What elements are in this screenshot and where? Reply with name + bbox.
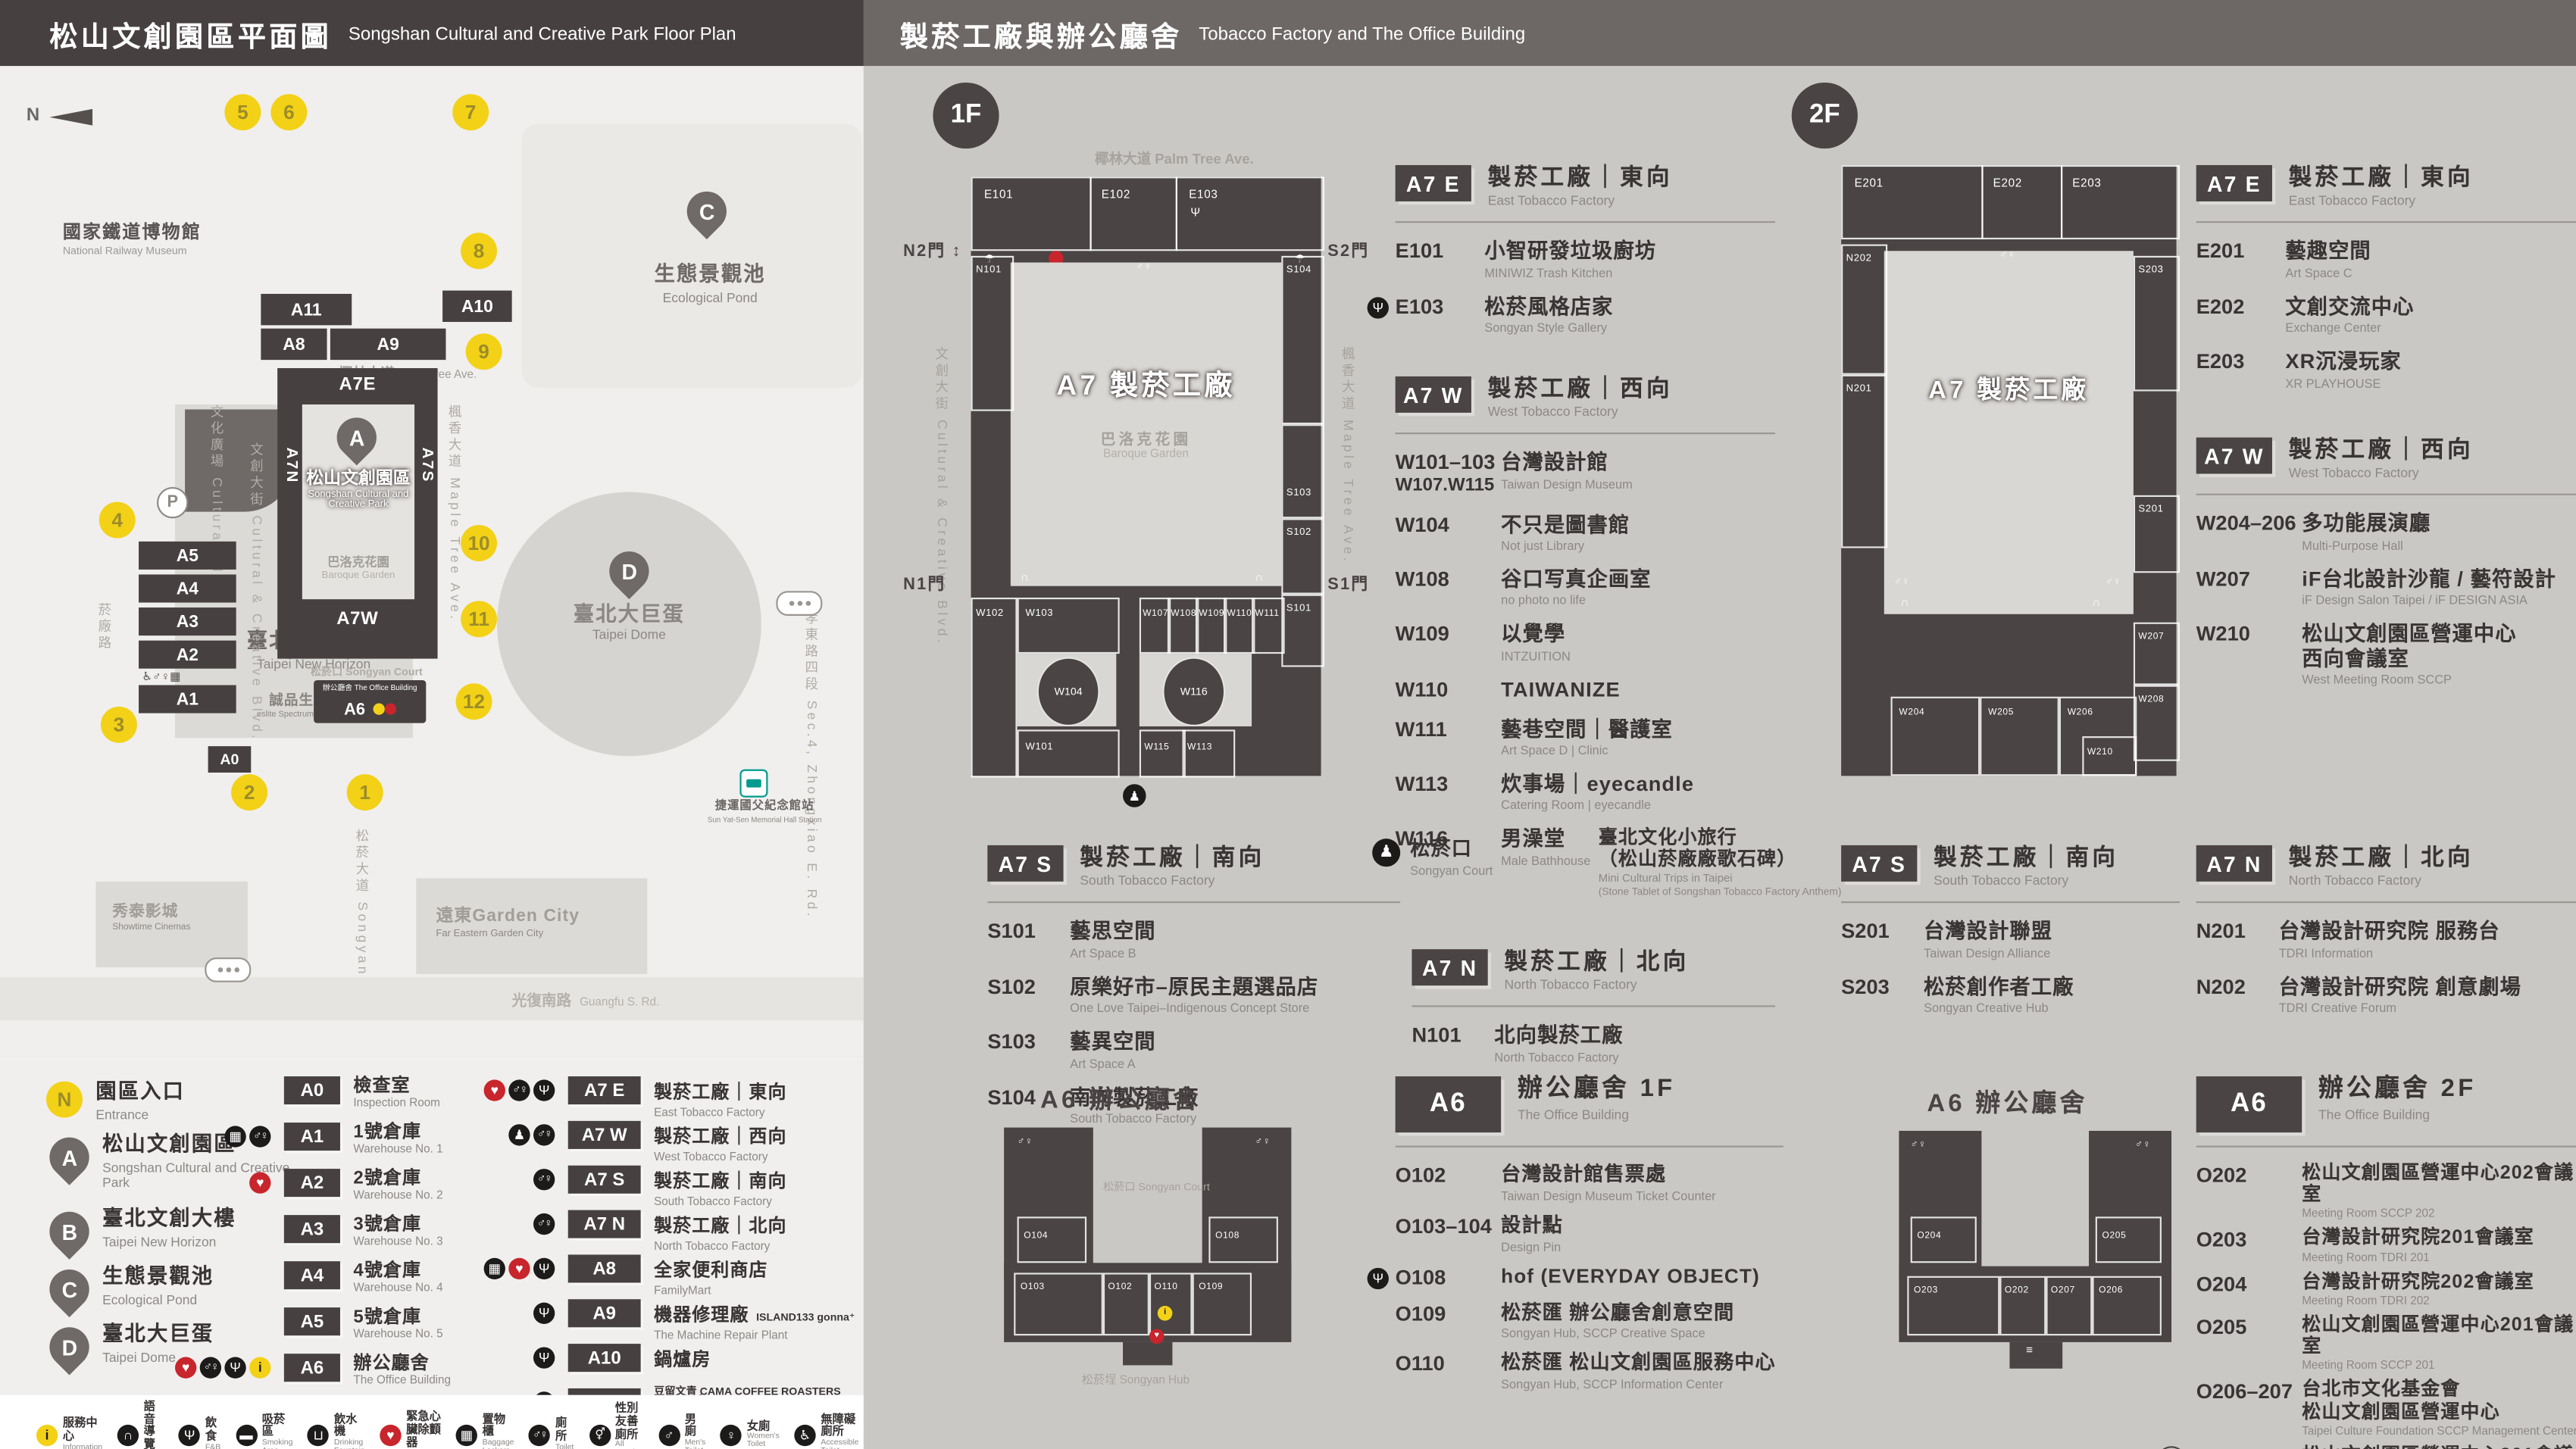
legend-entry[interactable]: Ψ O108 hof (EVERYDAY OBJECT)	[1396, 1266, 1784, 1291]
lockers-icon: ▦	[170, 672, 180, 683]
palm-ave-1f: 椰林大道 Palm Tree Ave.	[1095, 148, 1254, 168]
north-label: N	[27, 105, 39, 125]
ccb-1f: 文創大街 Cultural & Creative Blvd.	[933, 347, 951, 646]
icon-legend-item: ▬ 吸菸區Smoking Area	[236, 1414, 293, 1449]
north-arrow-icon	[49, 109, 92, 126]
guangfu-road	[0, 977, 864, 1020]
legend-entry[interactable]: W113 炊事場｜eyecandleCatering Room | eyecan…	[1396, 773, 1775, 813]
building-a9[interactable]: A9	[330, 329, 446, 360]
legend-entry[interactable]: O205 松山文創園區營運中心201會議室Meeting Room SCCP 2…	[2196, 1316, 2576, 1372]
fnb-icon: Ψ	[533, 1258, 555, 1279]
right-title-zh: 製菸工廠與辦公廳舍	[900, 12, 1183, 53]
toilet-icon: ♂♀	[533, 1124, 555, 1145]
aed-icon: ♥	[249, 1172, 270, 1193]
floor-plan-board: 松山文創園區平面圖 Songshan Cultural and Creative…	[0, 0, 2576, 1449]
ring-a7e-label: A7E	[277, 375, 437, 395]
entrance-number[interactable]: 9	[466, 333, 502, 370]
mrt-station-label: 捷運國父紀念館站 Sun Yat-Sen Memorial Hall Stati…	[674, 801, 855, 823]
entrance-number[interactable]: 7	[452, 94, 489, 130]
section-2f-a7w: A7 W 製菸工廠｜西向West Tobacco Factory W204–20…	[2196, 438, 2576, 701]
audio-icon: ∩	[1255, 573, 1264, 584]
plan-a6-2f[interactable]: A6 辦公廳舍 O204 O205 O203 O202 O207 O206 ♂♀…	[1891, 1082, 2180, 1395]
legend-entry[interactable]: S101 藝思空間Art Space B	[987, 920, 1400, 960]
toilet-icon: ♂♀	[2106, 578, 2121, 588]
entrance-number[interactable]: 10	[461, 525, 497, 561]
left-legend: N 園區入口Entrance A 松山文創園區Songshan Cultural…	[0, 1057, 864, 1395]
left-title-en: Songshan Cultural and Creative Park Floo…	[349, 25, 736, 45]
wheelchair-icon: ♿	[142, 672, 152, 683]
plan-a6-1f[interactable]: A6 辦公廳舍 松菸口 Songyan Court O104 O108 O103…	[991, 1082, 1305, 1395]
building-legend-row: ♥♂♀Ψi A6 辦公廳舍The Office Building	[195, 1354, 451, 1387]
info-icon: i	[1158, 1306, 1173, 1321]
building-legend-row: A3 3號倉庫Warehouse No. 3	[195, 1215, 442, 1248]
building-a4[interactable]: A4	[139, 574, 236, 602]
yanchang-rd-label: 菸廠路	[95, 603, 114, 652]
building-a2[interactable]: A2	[139, 641, 236, 669]
right-body: 1F 椰林大道 Palm Tree Ave. 文創大街 Cultural & C…	[864, 66, 2576, 1449]
icon-legend-item: Ψ 飲食F&B	[179, 1419, 220, 1449]
section-1f-a7n: A7 N 製菸工廠｜北向North Tobacco Factory N101 北…	[1411, 949, 1774, 1079]
entrance-number[interactable]: 12	[456, 683, 492, 720]
section-1f-a7e: A7 E 製菸工廠｜東向East Tobacco Factory E101 小智…	[1396, 165, 1775, 350]
marker-legend-row: C 生態景觀池Ecological Pond	[46, 1266, 214, 1310]
fnb-icon: Ψ	[179, 1425, 200, 1446]
aed-icon: ♥	[380, 1425, 401, 1446]
zhongxiao-rd-label: 忠孝東路四段 Sec.4, Zhongxiao E. Rd.	[802, 595, 821, 920]
toilet-icon: ♂♀	[1255, 1138, 1271, 1148]
icon-legend-item: ∩ 語音導覽Audio Tour	[117, 1401, 164, 1449]
toilet-icon: ♂♀	[1911, 1141, 1927, 1151]
legend-entry[interactable]: W101–103W107.W115 台灣設計館Taiwan Design Mus…	[1396, 451, 1775, 498]
legend-entry[interactable]: E203 XR沉浸玩家XR PLAYHOUSE	[2196, 350, 2576, 390]
floor-badge-2f: 2F	[1792, 83, 1858, 148]
metro-logo-icon	[739, 770, 767, 798]
entrance-number[interactable]: 2	[231, 774, 267, 810]
toilet-icon: ♂♀	[508, 1079, 530, 1101]
right-title-en: Tobacco Factory and The Office Building	[1199, 25, 1525, 45]
bus-stop-icon	[776, 591, 822, 616]
legend-entry[interactable]: O109 松菸匯 辦公廳舍創意空間Songyan Hub, SCCP Creat…	[1396, 1302, 1784, 1341]
section-1f-a7w: A7 W 製菸工廠｜西向West Tobacco Factory W101–10…	[1396, 376, 1775, 883]
building-a3[interactable]: A3	[139, 607, 236, 635]
building-a6-map[interactable]: 辦公廳舍 The Office Building A6	[314, 680, 426, 723]
male-icon: ♂	[658, 1425, 680, 1446]
accessible_elevator-icon: ↕	[952, 242, 962, 261]
legend-entry[interactable]: W204–206 多功能展演廳Multi-Purpose Hall	[2196, 512, 2576, 552]
legend-entry[interactable]: S201 台灣設計聯盟Taiwan Design Alliance	[1841, 920, 2180, 960]
lockers-icon: ▦	[484, 1258, 505, 1279]
legend-entry[interactable]: Ψ E103 松菸風格店家Songyan Style Gallery	[1396, 295, 1775, 336]
plan-2f[interactable]: E201 E202 E203 N202 N201 S203 S201 W207 …	[1841, 165, 2176, 776]
building-a0[interactable]: A0	[208, 746, 252, 773]
legend-entry[interactable]: N101 北向製菸工廠North Tobacco Factory	[1411, 1024, 1774, 1064]
legend-entry[interactable]: W210 松山文創園區營運中心西向會議室West Meeting Room SC…	[2196, 623, 2576, 686]
legend-entry[interactable]: O204 台灣設計研究院202會議室Meeting Room TDRI 202	[2196, 1273, 2576, 1307]
building-a8[interactable]: A8	[261, 329, 327, 360]
icon-legend-item: ⊔ 飲水機Drinking Fountain	[308, 1414, 365, 1449]
plan-1f[interactable]: E101 E102 E103Ψ ☂ ☂ N101 S104 S103 S102 …	[971, 176, 1321, 776]
icon-legend-item: ♂ 男廁Men's Toilet	[658, 1414, 705, 1449]
section-a6-1f: A6 辦公廳舍 1FThe Office Building O102 台灣設計館…	[1396, 1076, 1784, 1404]
toilet-icon: ♂♀	[533, 1213, 555, 1235]
toilet-icon: ♂♀	[1894, 578, 1910, 588]
building-legend-row: Ψ A9 機器修理廠 ISLAND133 gonna⁺The Machine R…	[479, 1299, 855, 1342]
building-legend-row: ♥♂♀Ψ A7 E 製菸工廠｜東向 East Tobacco Factory	[479, 1076, 786, 1120]
left-header: 松山文創園區平面圖 Songshan Cultural and Creative…	[0, 0, 864, 66]
legend-entry[interactable]: E201 藝趣空間Art Space C	[2196, 240, 2576, 280]
cinema-block: 秀泰影城 Showtime Cinemas	[95, 882, 248, 967]
legend-entry[interactable]: W110 TAIWANIZE	[1396, 678, 1775, 703]
fnb-icon: Ψ	[533, 1303, 555, 1324]
legend-entry[interactable]: W104 不只是圖書館Not just Library	[1396, 513, 1775, 553]
park-name-label: 松山文創園區 Songshan Cultural and Creative Pa…	[284, 466, 433, 511]
entrance-number[interactable]: 1	[347, 774, 383, 810]
icon-legend-item: ♀ 女廁Women's Toilet	[721, 1421, 780, 1449]
gate-s2: S2門	[1327, 236, 1369, 261]
pond-label: 生態景觀池 Ecological Pond	[627, 264, 792, 305]
legend-entry[interactable]: O103–104 設計點Design Pin	[1396, 1215, 1784, 1254]
a6-court-label: 松菸口 Songyan Court	[1103, 1177, 1210, 1194]
toilet-icon: ♂♀	[533, 1169, 555, 1190]
fnb-icon: Ψ	[224, 1357, 245, 1379]
icon-legend-item: ⚥ 性別友善廁所All Gender Toilet	[589, 1404, 643, 1449]
legend-entry[interactable]: O110 松菸匯 松山文創園區服務中心Songyan Hub, SCCP Inf…	[1396, 1353, 1784, 1392]
toilet-icon: ♂♀	[1999, 251, 2015, 261]
section-1f-court: ♟ 松菸口Songyan Court	[1372, 838, 1587, 878]
aed-icon: ♥	[508, 1258, 530, 1279]
aed-icon: ♥	[484, 1079, 505, 1101]
audio-icon: ∩	[1901, 598, 1910, 609]
maple-1f: 楓香大道 Maple Tree Ave.	[1340, 347, 1358, 564]
a7-ring[interactable]: A7E A7N A7S A7W	[277, 368, 437, 659]
building-a5[interactable]: A5	[139, 542, 236, 570]
legend-entry[interactable]: N202 台灣設計研究院 創意劇場TDRI Creative Forum	[2196, 976, 2576, 1016]
gate-n1: N1門	[903, 570, 946, 595]
legend-entry[interactable]: S203 松菸創作者工廠Songyan Creative Hub	[1841, 976, 2180, 1016]
dome-label: 臺北大巨蛋 Taipei Dome	[546, 604, 711, 642]
fnb-icon: Ψ	[533, 1079, 555, 1101]
toilet-icon: ♂♀	[152, 672, 170, 683]
court-figure-icon: ♟	[1123, 784, 1146, 807]
section-2f-a7n: A7 N 製菸工廠｜北向North Tobacco Factory N201 台…	[2196, 845, 2576, 1030]
garden-city-block: 遠東Garden City Far Eastern Garden City	[416, 878, 647, 973]
bus-stop-icon-2	[205, 957, 251, 982]
park-map[interactable]: N 國家鐵道博物館 National Railway Museum C 生態景觀…	[0, 66, 864, 1057]
fnb-icon: Ψ	[533, 1347, 555, 1368]
court-entry: 臺北文化小旅行 （松山菸廠廠歌石碑） Mini Cultural Trips i…	[1599, 829, 1863, 898]
entrance-number[interactable]: 8	[461, 233, 497, 269]
lockers-icon: ▦	[224, 1126, 245, 1147]
guangfu-label: 光復南路 Guangfu S. Rd.	[512, 989, 660, 1010]
building-legend-row: ♟♂♀ A7 W 製菸工廠｜西向 West Tobacco Factory	[479, 1121, 786, 1164]
building-legend-row: A0 檢查室Inspection Room	[195, 1076, 440, 1110]
railway-museum-label: 國家鐵道博物館 National Railway Museum	[63, 223, 202, 258]
building-legend-row: A4 4號倉庫Warehouse No. 4	[195, 1261, 442, 1294]
building-legend-row: ♥ A2 2號倉庫Warehouse No. 2	[195, 1169, 442, 1202]
legend-entry[interactable]: W108 谷口写真企画室no photo no life	[1396, 568, 1775, 608]
legend-entry[interactable]: W109 以覺學INTZUITION	[1396, 623, 1775, 663]
plan-1f-center-label: A7 製菸工廠	[1018, 361, 1275, 402]
legend-entry[interactable]: E101 小智研發垃圾廚坊MINIWIZ Trash Kitchen	[1396, 240, 1775, 280]
wheelchair-icon: ♿	[794, 1425, 815, 1446]
marker-legend-row: N 園區入口Entrance	[46, 1082, 185, 1123]
legend-entry[interactable]: S102 原樂好市–原民主題選品店One Love Taipei–Indigen…	[987, 976, 1400, 1016]
entrance-number[interactable]: 4	[99, 502, 136, 539]
building-a10[interactable]: A10	[442, 291, 512, 322]
section-2f-a7e: A7 E 製菸工廠｜東向East Tobacco Factory E201 藝趣…	[2196, 165, 2576, 405]
info-icon: i	[36, 1425, 58, 1446]
water-icon: ⊔	[308, 1425, 329, 1446]
building-a1[interactable]: A1	[139, 685, 236, 713]
legend-entry[interactable]: W111 藝巷空間｜醫護室Art Space D | Clinic	[1396, 717, 1775, 757]
building-legend-row: A5 5號倉庫Warehouse No. 5	[195, 1307, 442, 1341]
building-legend-row: ♂♀ A7 S 製菸工廠｜南向 South Tobacco Factory	[479, 1166, 786, 1209]
audio-icon: ∩	[1021, 573, 1030, 584]
icon-legend-item: ♿ 無障礙廁所Accessible Toilet	[794, 1414, 858, 1449]
legend-entry[interactable]: N201 台灣設計研究院 服務台TDRI Information	[2196, 920, 2576, 960]
left-title-zh: 松山文創園區平面圖	[49, 12, 332, 53]
toilet-icon: ♂♀	[2135, 1141, 2151, 1151]
floor-badge-1f: 1F	[933, 83, 999, 148]
icon-legend-item: i 服務中心Information	[36, 1419, 102, 1449]
legend-entry[interactable]: O202 松山文創園區營運中心202會議室Meeting Room SCCP 2…	[2196, 1164, 2576, 1221]
ccb-street-label: 文創大街 Cultural & Creative Blvd.	[248, 442, 266, 742]
building-legend-row: ▦♂♀ A1 1號倉庫Warehouse No. 1	[195, 1123, 442, 1156]
fnb-icon: Ψ	[1368, 1267, 1389, 1288]
aed-icon: ♥	[175, 1357, 196, 1379]
toilet-icon: ♂♀	[1136, 263, 1152, 273]
legend-entry[interactable]: O102 台灣設計館售票處Taiwan Design Museum Ticket…	[1396, 1164, 1784, 1204]
stairs-icon: ≡	[2026, 1345, 2034, 1357]
toilet-icon: ♂♀	[529, 1425, 550, 1446]
ring-a7w-label: A7W	[277, 609, 437, 629]
legend-entry[interactable]: W207 iF台北設計沙龍 / 藝符設計iF Design Salon Taip…	[2196, 567, 2576, 607]
legend-entry[interactable]: S103 藝異空間Art Space A	[987, 1030, 1400, 1070]
a1-icons: ♿♂♀▦	[142, 670, 180, 683]
right-header: 製菸工廠與辦公廳舍 Tobacco Factory and The Office…	[864, 0, 2576, 66]
fnb-icon: Ψ	[1368, 297, 1389, 318]
ecological-pond	[522, 123, 862, 388]
legend-entry[interactable]: O206–207 台北市文化基金會松山文創園區營運中心Taipei Cultur…	[2196, 1381, 2576, 1438]
culture-icon: ♟	[508, 1124, 530, 1145]
info-icon: i	[249, 1357, 270, 1379]
section-a6-2f: A6 辦公廳舍 2FThe Office Building O202 松山文創園…	[2196, 1076, 2576, 1449]
icon-legend-item: ♥ 緊急心臟除顫器AED	[380, 1412, 441, 1449]
section-2f-a7s: A7 S 製菸工廠｜南向South Tobacco Factory S201 台…	[1841, 845, 2180, 1030]
gate-n2: N2門 ↕	[903, 236, 962, 261]
fnb-icon: Ψ	[1190, 208, 1200, 220]
legend-entry[interactable]: O203 台灣設計研究院201會議室Meeting Room TDRI 201	[2196, 1229, 2576, 1263]
toilet-icon: ♂♀	[200, 1357, 221, 1379]
audio-icon: ∩	[117, 1425, 139, 1446]
toilet_all-icon: ⚥	[589, 1425, 610, 1446]
plan-2f-center-label: A7 製菸工廠	[1884, 371, 2134, 406]
building-a11[interactable]: A11	[261, 294, 352, 325]
maple-ave-label: 楓香大道 Maple Tree Ave.	[445, 404, 464, 622]
legend-entry[interactable]: E202 文創交流中心Exchange Center	[2196, 295, 2576, 336]
entrance-number[interactable]: 11	[461, 601, 497, 637]
toilet-icon: ♂♀	[249, 1126, 270, 1147]
entrance-number[interactable]: 6	[270, 94, 307, 130]
building-legend-row: ▦♥Ψ A8 全家便利商店 FamilyMart	[479, 1254, 767, 1298]
female-icon: ♀	[721, 1425, 742, 1446]
icon-legend-item: ▦ 置物櫃Baggage Lockers	[456, 1414, 514, 1449]
icon-legend-left: i 服務中心Information ∩ 語音導覽Audio Tour Ψ 飲食F…	[36, 1401, 858, 1449]
lockers-icon: ▦	[456, 1425, 477, 1446]
toilet-icon: ♂♀	[1018, 1138, 1033, 1148]
songyan-court-label: 松菸口 Songyan Court	[311, 662, 423, 679]
culture-icon: ♟	[1372, 838, 1400, 867]
icon-legend-item: ♂♀ 廁所Toilet	[529, 1419, 574, 1449]
entrance-number[interactable]: 3	[101, 707, 137, 743]
audio-icon: ∩	[2092, 598, 2101, 609]
legend-entry[interactable]: 3F O302 松山文創園區營運中心301會議室Meeting Room SCC…	[2196, 1446, 2576, 1449]
baroque-1f-label: 巴洛克花園 Baroque Garden	[1021, 427, 1271, 461]
entrance-number[interactable]: 5	[224, 94, 261, 130]
baroque-garden-label: 巴洛克花園 Baroque Garden	[301, 553, 417, 581]
a6-hub-label: 松菸埕 Songyan Hub	[1082, 1372, 1190, 1388]
parking-icon-2: P	[157, 487, 188, 518]
building-legend-row: ♂♀ A7 N 製菸工廠｜北向 North Tobacco Factory	[479, 1210, 786, 1254]
aed-icon: ♥	[1149, 1329, 1165, 1344]
gate-s1: S1門	[1327, 570, 1369, 595]
smoking-icon: ▬	[236, 1425, 257, 1446]
